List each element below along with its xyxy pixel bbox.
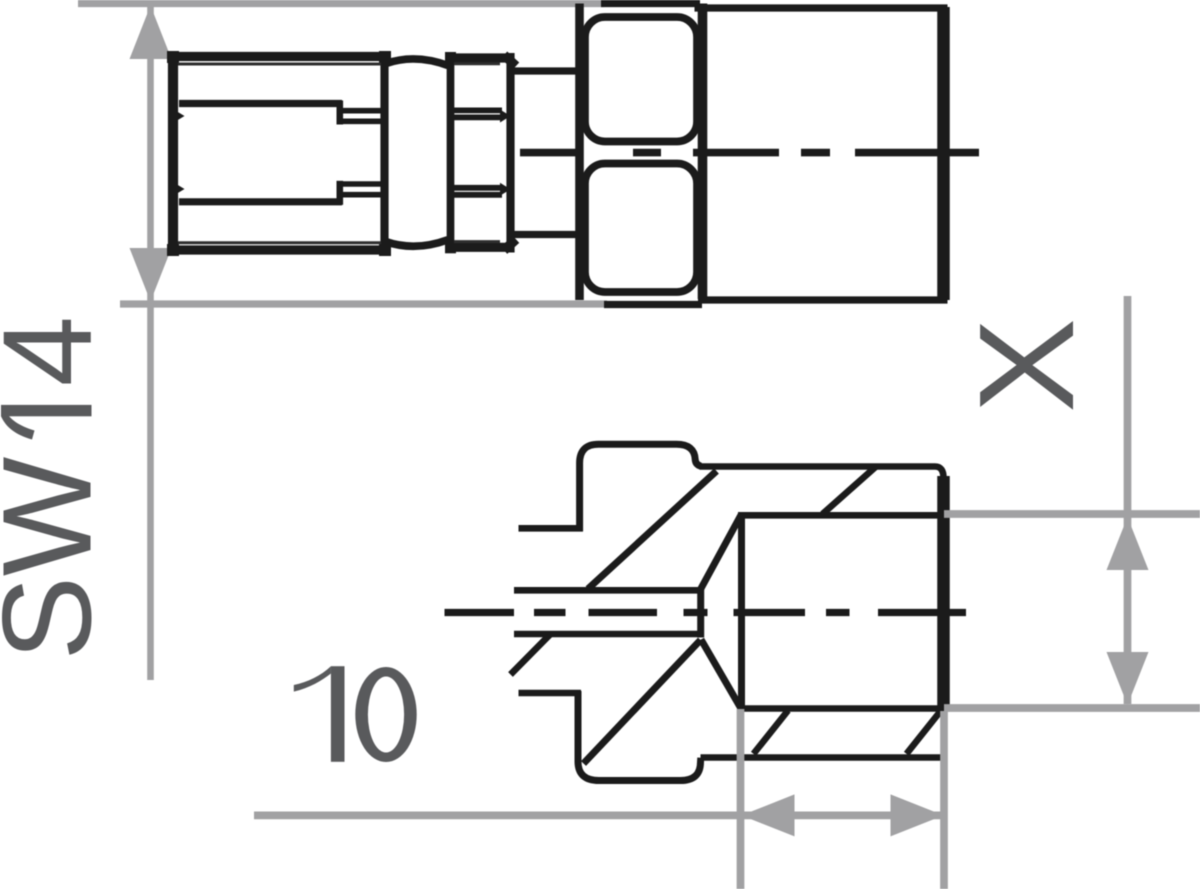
- svg-text:4: 4: [0, 316, 118, 386]
- svg-text:SW: SW: [0, 457, 118, 661]
- svg-text:X: X: [951, 318, 1102, 413]
